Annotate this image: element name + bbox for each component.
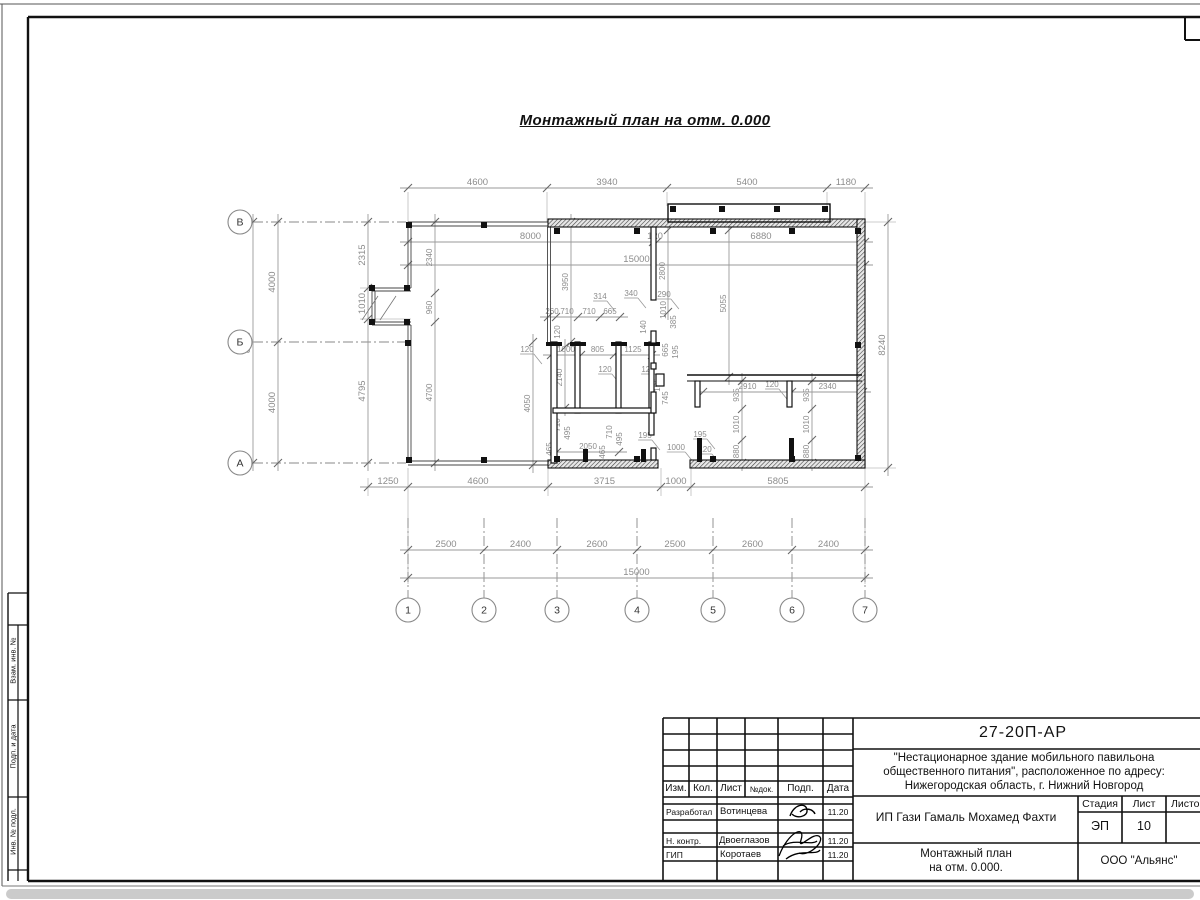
svg-text:2: 2	[481, 605, 487, 617]
svg-text:15000: 15000	[623, 254, 649, 265]
svg-text:8000: 8000	[520, 231, 541, 242]
svg-text:1: 1	[405, 605, 411, 617]
horizontal-scrollbar[interactable]	[6, 889, 1194, 899]
svg-text:1180: 1180	[836, 177, 856, 188]
svg-text:2600: 2600	[742, 539, 763, 550]
svg-text:1010: 1010	[357, 293, 368, 314]
svg-text:2315: 2315	[357, 244, 368, 265]
svg-text:340: 340	[624, 289, 638, 298]
svg-text:290: 290	[657, 290, 671, 299]
svg-text:710: 710	[582, 307, 596, 316]
svg-text:2500: 2500	[435, 539, 456, 550]
client-name: ИП Гази Гамаль Мохамед Фахти	[855, 810, 1077, 824]
frame-label-inv: Инв. № подл.	[9, 792, 18, 872]
col-header-ndok: №док.	[745, 785, 778, 794]
svg-text:4: 4	[634, 605, 640, 617]
svg-text:880: 880	[802, 444, 811, 458]
page-title: Монтажный план на отм. 0.000	[455, 112, 835, 129]
svg-text:120: 120	[553, 325, 562, 339]
col-header-izm: Изм.	[663, 783, 689, 794]
svg-text:665: 665	[603, 307, 617, 316]
row-date-gip: 11.20	[823, 850, 853, 860]
svg-text:1000: 1000	[665, 476, 686, 487]
col-header-data: Дата	[823, 783, 853, 794]
svg-text:6: 6	[789, 605, 795, 617]
svg-text:Б: Б	[237, 337, 244, 349]
svg-text:935: 935	[732, 388, 741, 402]
svg-text:465: 465	[598, 445, 607, 459]
svg-text:195: 195	[671, 345, 680, 359]
svg-text:1010: 1010	[802, 415, 811, 433]
svg-text:4050: 4050	[523, 394, 532, 412]
svg-text:5: 5	[710, 605, 716, 617]
row-role-developer: Разработал	[666, 807, 712, 817]
svg-text:2600: 2600	[586, 539, 607, 550]
doc-number: 27-20П-АР	[853, 724, 1193, 742]
svg-text:3950: 3950	[561, 273, 570, 291]
svg-text:935: 935	[802, 388, 811, 402]
col-header-podp: Подп.	[778, 783, 823, 794]
sheet-header: Лист	[1122, 798, 1166, 810]
svg-text:1125: 1125	[624, 345, 642, 354]
svg-text:4000: 4000	[267, 392, 278, 413]
row-name-gip: Коротаев	[720, 849, 761, 860]
floor-plan-svg: 4600394054001180800012068801500026071071…	[0, 0, 1200, 900]
svg-text:7: 7	[862, 605, 868, 617]
organization-name: ООО "Альянс"	[1078, 855, 1200, 867]
row-date-ncontrol: 11.20	[823, 836, 853, 846]
svg-text:1010: 1010	[732, 415, 741, 433]
svg-text:3: 3	[554, 605, 560, 617]
svg-text:1010: 1010	[659, 301, 668, 319]
project-description-line1: "Нестационарное здание мобильного павиль…	[856, 752, 1192, 764]
svg-text:2050: 2050	[579, 442, 597, 451]
project-description-line2: общественного питания", расположенное по…	[856, 766, 1192, 778]
svg-text:2400: 2400	[818, 539, 839, 550]
svg-text:2910: 2910	[739, 382, 757, 391]
svg-text:5400: 5400	[736, 177, 757, 188]
svg-text:1000: 1000	[667, 443, 685, 452]
sheet-number: 10	[1122, 819, 1166, 833]
col-header-list: Лист	[717, 783, 745, 794]
svg-text:805: 805	[591, 345, 605, 354]
row-role-ncontrol: Н. контр.	[666, 836, 701, 846]
svg-text:3715: 3715	[594, 476, 615, 487]
row-name-developer: Вотинцева	[720, 806, 767, 817]
svg-text:5055: 5055	[719, 294, 728, 312]
svg-text:6880: 6880	[750, 231, 771, 242]
sheets-header: Листов	[1166, 798, 1200, 810]
svg-text:314: 314	[593, 292, 607, 301]
svg-text:2400: 2400	[510, 539, 531, 550]
svg-text:710: 710	[605, 425, 614, 439]
svg-text:495: 495	[615, 432, 624, 446]
row-role-gip: ГИП	[666, 850, 683, 860]
svg-text:2800: 2800	[658, 262, 667, 280]
svg-text:А: А	[236, 458, 243, 470]
svg-text:4000: 4000	[267, 271, 278, 292]
svg-text:4700: 4700	[425, 383, 434, 401]
frame-label-vzam: Взам. инв. №	[9, 621, 18, 701]
svg-text:385: 385	[669, 315, 678, 329]
svg-text:960: 960	[425, 300, 434, 314]
row-name-ncontrol: Двоеглазов	[719, 835, 770, 846]
svg-text:3940: 3940	[596, 177, 617, 188]
svg-text:2340: 2340	[819, 382, 837, 391]
svg-text:140: 140	[639, 320, 648, 334]
svg-text:4795: 4795	[357, 380, 368, 401]
svg-text:120: 120	[520, 345, 534, 354]
svg-text:665: 665	[661, 343, 670, 357]
svg-text:195: 195	[693, 430, 707, 439]
svg-text:5805: 5805	[767, 476, 788, 487]
drawing-sheet: 4600394054001180800012068801500026071071…	[0, 0, 1200, 900]
svg-text:4600: 4600	[467, 476, 488, 487]
sheet-name-line2: на отм. 0.000.	[855, 862, 1077, 874]
stage-header: Стадия	[1078, 798, 1122, 810]
svg-text:15000: 15000	[623, 567, 649, 578]
svg-text:2500: 2500	[664, 539, 685, 550]
svg-text:1250: 1250	[377, 476, 398, 487]
col-header-kol: Кол.	[689, 783, 717, 794]
frame-label-podp: Подп. и дата	[9, 707, 18, 787]
project-description-line3: Нижегородская область, г. Нижний Новгоро…	[856, 780, 1192, 792]
svg-text:745: 745	[661, 391, 670, 405]
stage-value: ЭП	[1078, 819, 1122, 833]
row-date-developer: 11.20	[823, 807, 853, 817]
svg-text:2340: 2340	[425, 248, 434, 266]
svg-text:880: 880	[732, 444, 741, 458]
svg-text:710: 710	[560, 307, 574, 316]
svg-text:4600: 4600	[467, 177, 488, 188]
svg-text:В: В	[236, 217, 243, 229]
sheet-name-line1: Монтажный план	[855, 848, 1077, 860]
svg-text:120: 120	[598, 365, 612, 374]
svg-text:8240: 8240	[877, 334, 888, 355]
svg-text:495: 495	[563, 426, 572, 440]
